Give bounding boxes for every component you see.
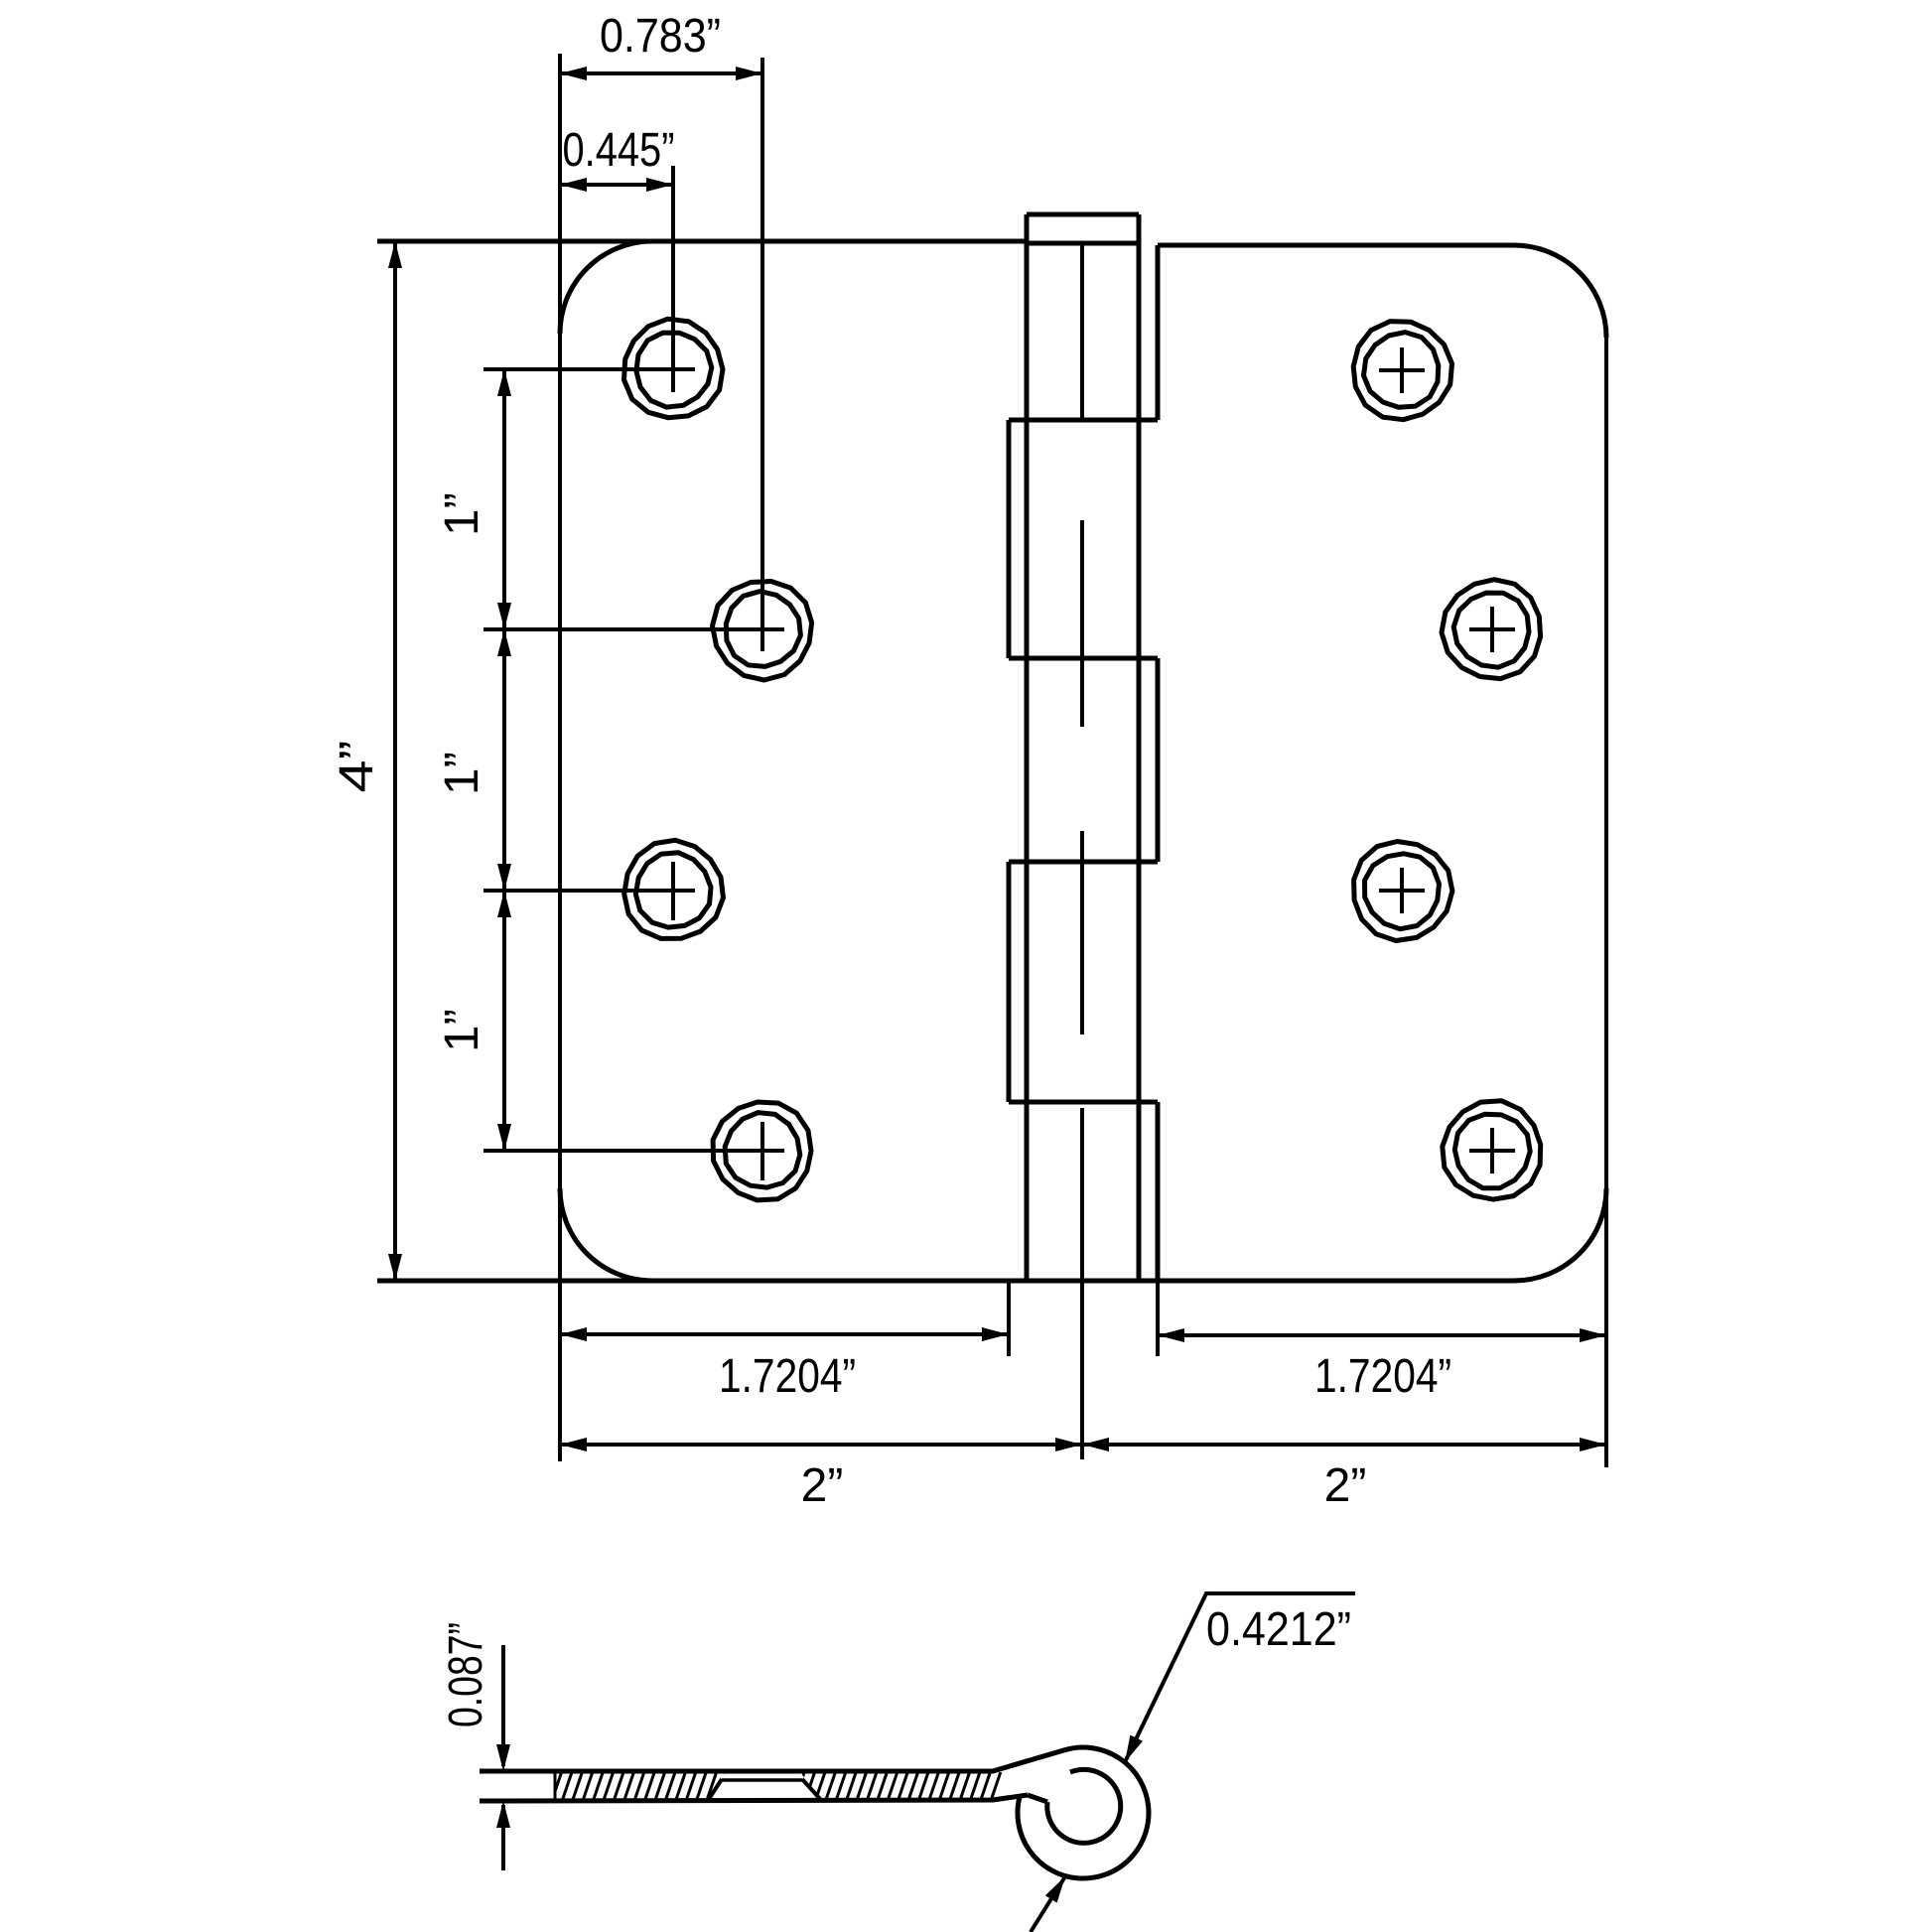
svg-text:0.4212”: 0.4212” <box>1206 1603 1351 1656</box>
svg-text:1”: 1” <box>436 1009 488 1052</box>
svg-text:1.7204”: 1.7204” <box>1314 1350 1451 1403</box>
svg-text:1”: 1” <box>436 492 488 536</box>
svg-text:0.445”: 0.445” <box>563 124 675 177</box>
svg-text:2”: 2” <box>1324 1459 1367 1512</box>
svg-text:4”: 4” <box>331 741 383 793</box>
svg-text:1.7204”: 1.7204” <box>719 1350 856 1403</box>
svg-text:2”: 2” <box>801 1459 844 1512</box>
svg-text:0.087”: 0.087” <box>440 1622 492 1727</box>
svg-text:1”: 1” <box>436 752 488 795</box>
svg-text:0.783”: 0.783” <box>600 10 721 63</box>
